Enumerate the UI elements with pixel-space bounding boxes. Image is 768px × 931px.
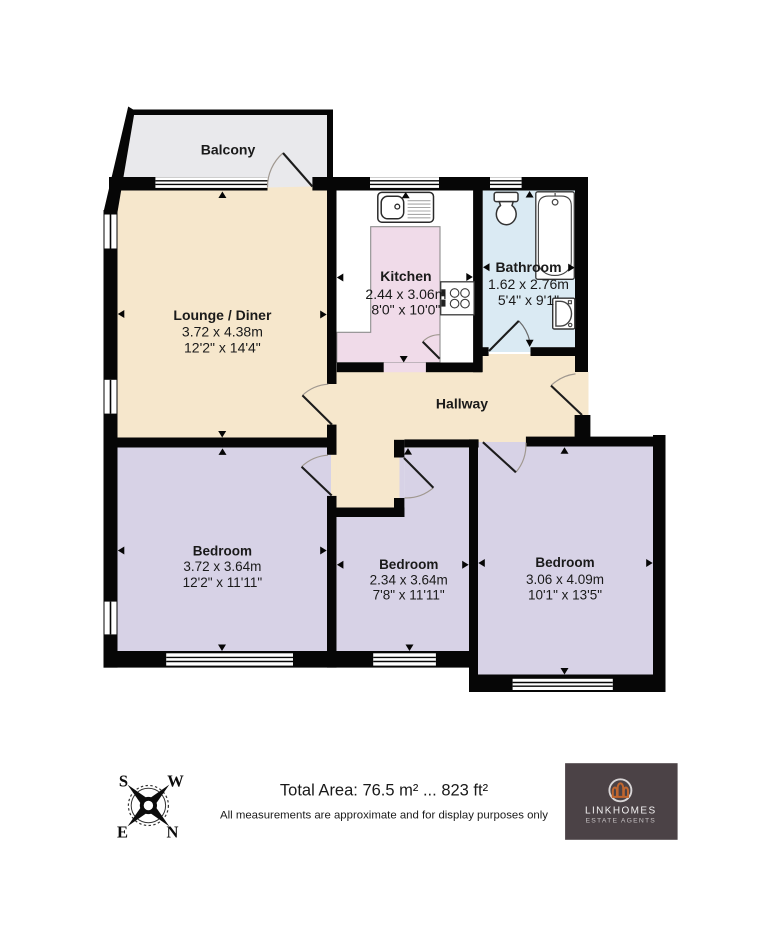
- svg-text:3.72 x 4.38m: 3.72 x 4.38m: [182, 323, 263, 339]
- svg-text:S: S: [119, 772, 128, 791]
- svg-text:Bathroom: Bathroom: [495, 259, 561, 275]
- svg-text:12'2" x 11'11": 12'2" x 11'11": [183, 575, 263, 590]
- svg-text:2.34 x 3.64m: 2.34 x 3.64m: [370, 572, 448, 587]
- svg-text:1.62 x 2.76m: 1.62 x 2.76m: [488, 276, 569, 292]
- svg-text:Lounge / Diner: Lounge / Diner: [173, 307, 272, 323]
- svg-text:All measurements are approxima: All measurements are approximate and for…: [220, 810, 548, 822]
- svg-text:Bedroom: Bedroom: [379, 557, 438, 572]
- svg-text:LINKHOMES: LINKHOMES: [585, 806, 657, 817]
- svg-text:Bedroom: Bedroom: [535, 555, 594, 570]
- svg-text:7'8" x 11'11": 7'8" x 11'11": [373, 587, 445, 602]
- svg-text:10'1" x 13'5": 10'1" x 13'5": [528, 587, 602, 602]
- svg-text:Total Area: 76.5 m² ... 823 ft: Total Area: 76.5 m² ... 823 ft²: [280, 782, 489, 800]
- svg-text:Hallway: Hallway: [436, 395, 488, 411]
- svg-text:N: N: [167, 823, 179, 842]
- svg-text:Bedroom: Bedroom: [193, 543, 252, 558]
- svg-text:Balcony: Balcony: [201, 142, 256, 158]
- svg-text:E: E: [117, 823, 128, 842]
- svg-text:5'4" x 9'1": 5'4" x 9'1": [498, 292, 559, 308]
- svg-text:8'0" x 10'0": 8'0" x 10'0": [371, 301, 440, 317]
- svg-text:ESTATE AGENTS: ESTATE AGENTS: [586, 818, 657, 825]
- svg-text:12'2" x 14'4": 12'2" x 14'4": [184, 339, 261, 355]
- svg-text:Kitchen: Kitchen: [380, 268, 431, 284]
- svg-text:2.44 x 3.06m: 2.44 x 3.06m: [365, 286, 446, 302]
- svg-text:W: W: [167, 772, 184, 791]
- svg-text:3.06 x 4.09m: 3.06 x 4.09m: [526, 572, 604, 587]
- svg-text:3.72 x 3.64m: 3.72 x 3.64m: [183, 559, 261, 574]
